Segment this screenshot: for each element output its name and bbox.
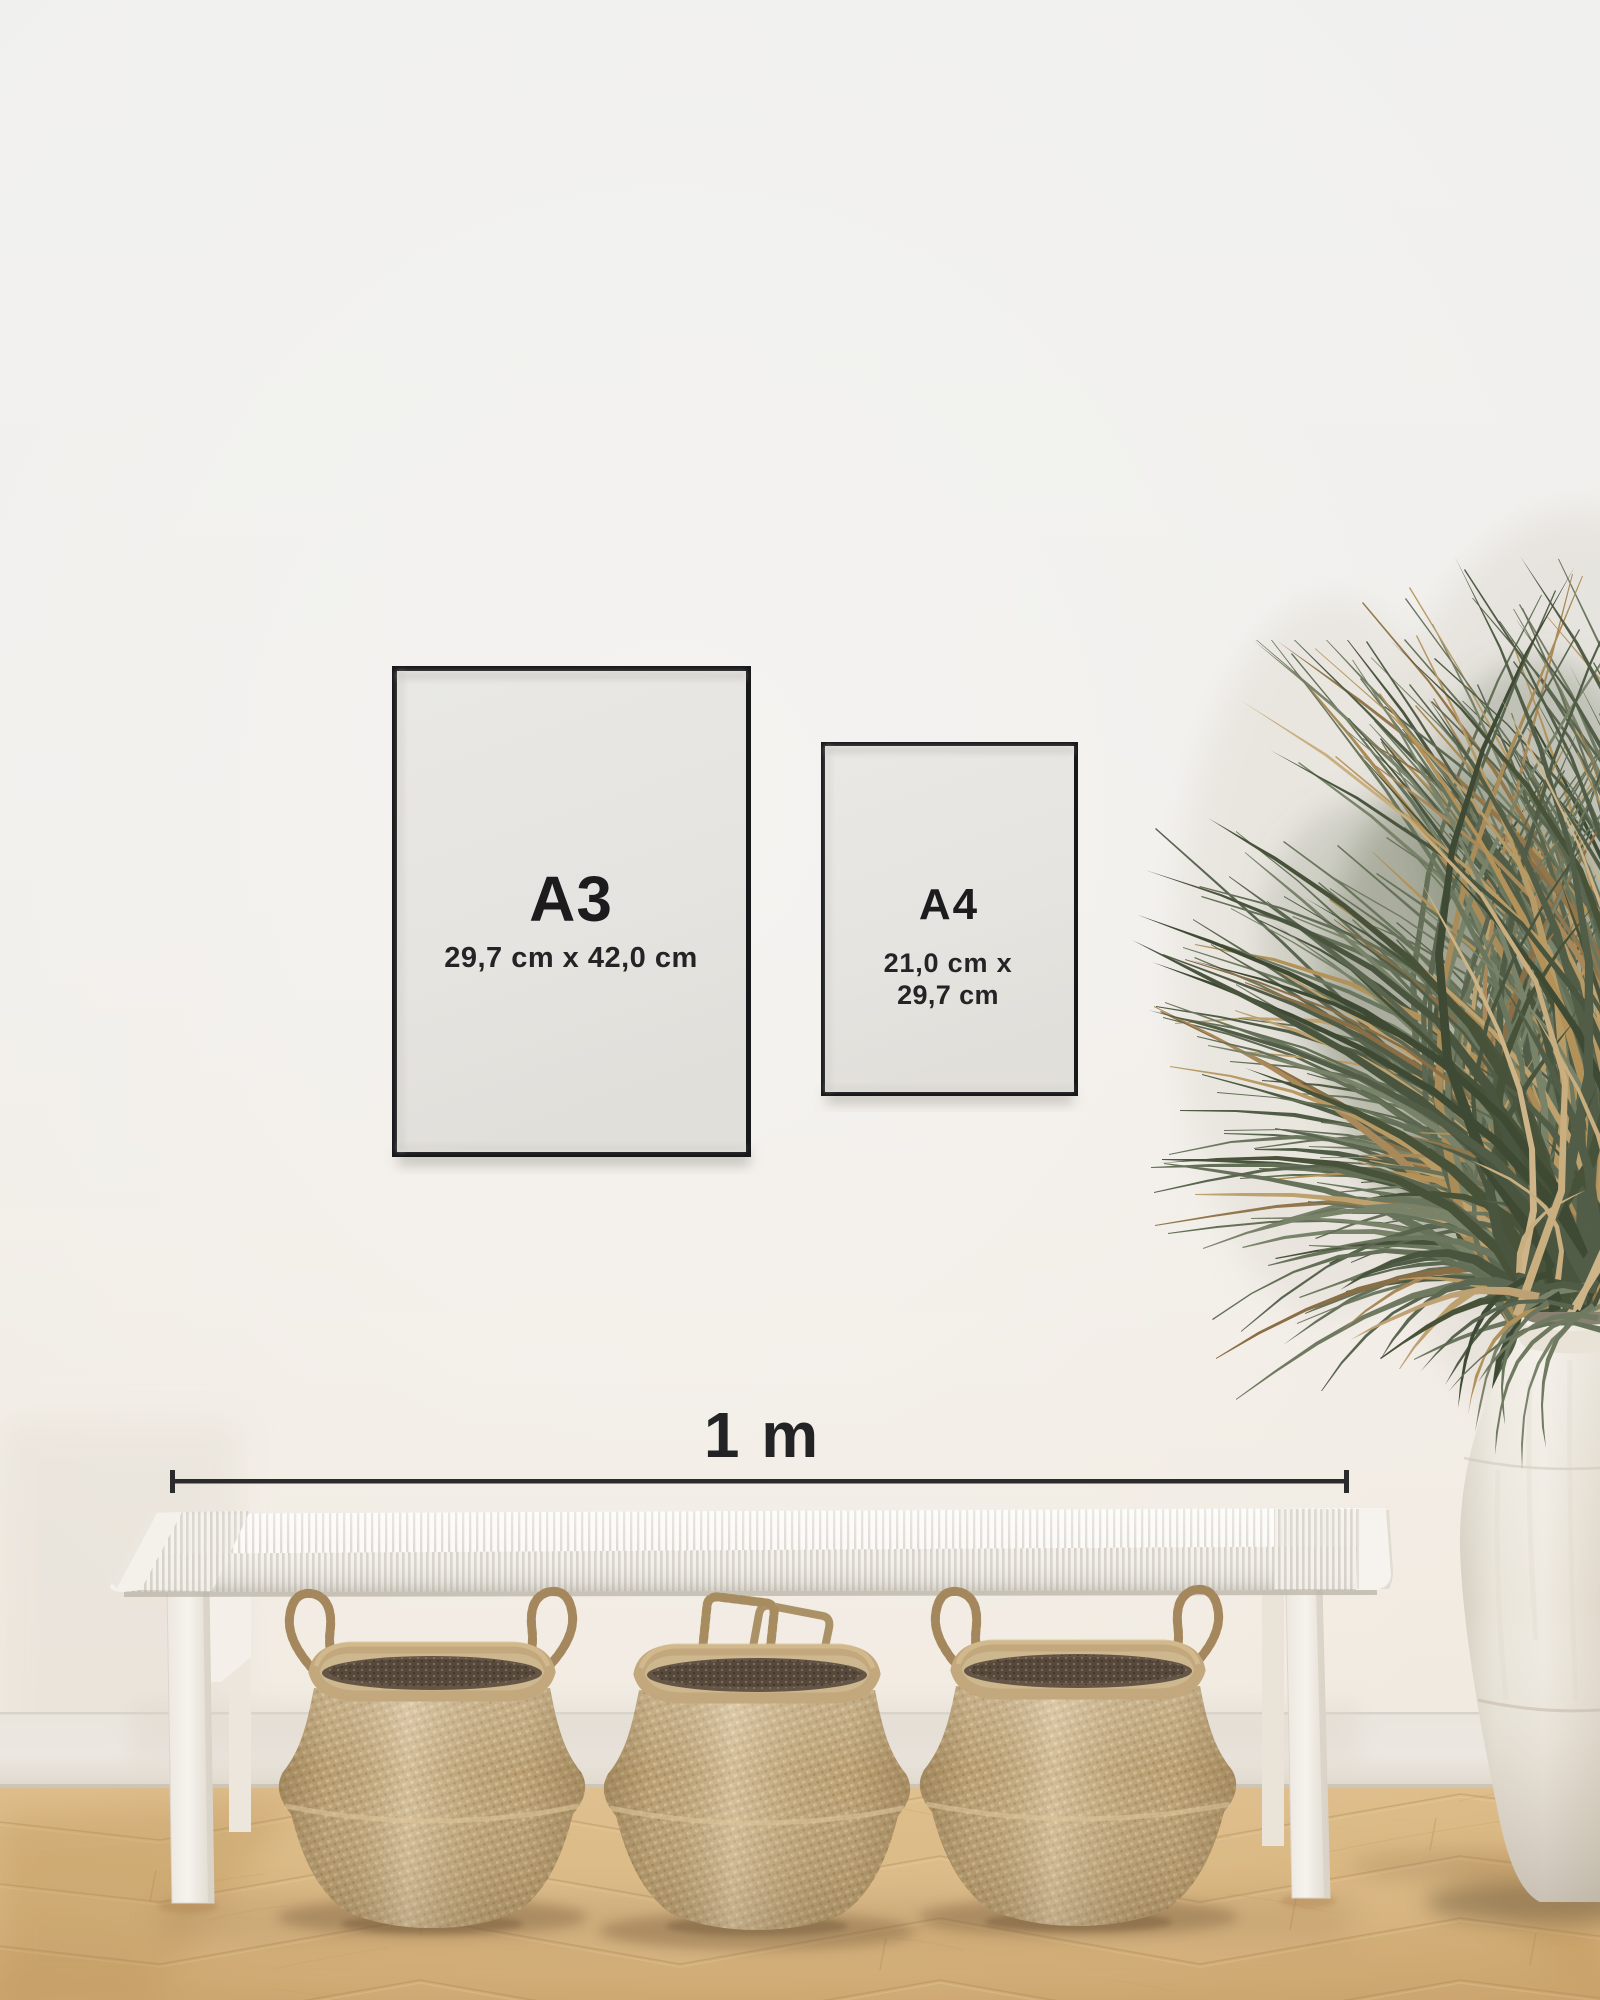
svg-text:1 m: 1 m: [704, 1399, 820, 1471]
svg-text:21,0 cm x: 21,0 cm x: [884, 948, 1013, 978]
svg-text:29,7 cm: 29,7 cm: [897, 980, 999, 1010]
svg-text:29,7 cm x 42,0 cm: 29,7 cm x 42,0 cm: [444, 942, 698, 974]
svg-text:A3: A3: [529, 863, 613, 935]
svg-text:A4: A4: [919, 880, 979, 929]
